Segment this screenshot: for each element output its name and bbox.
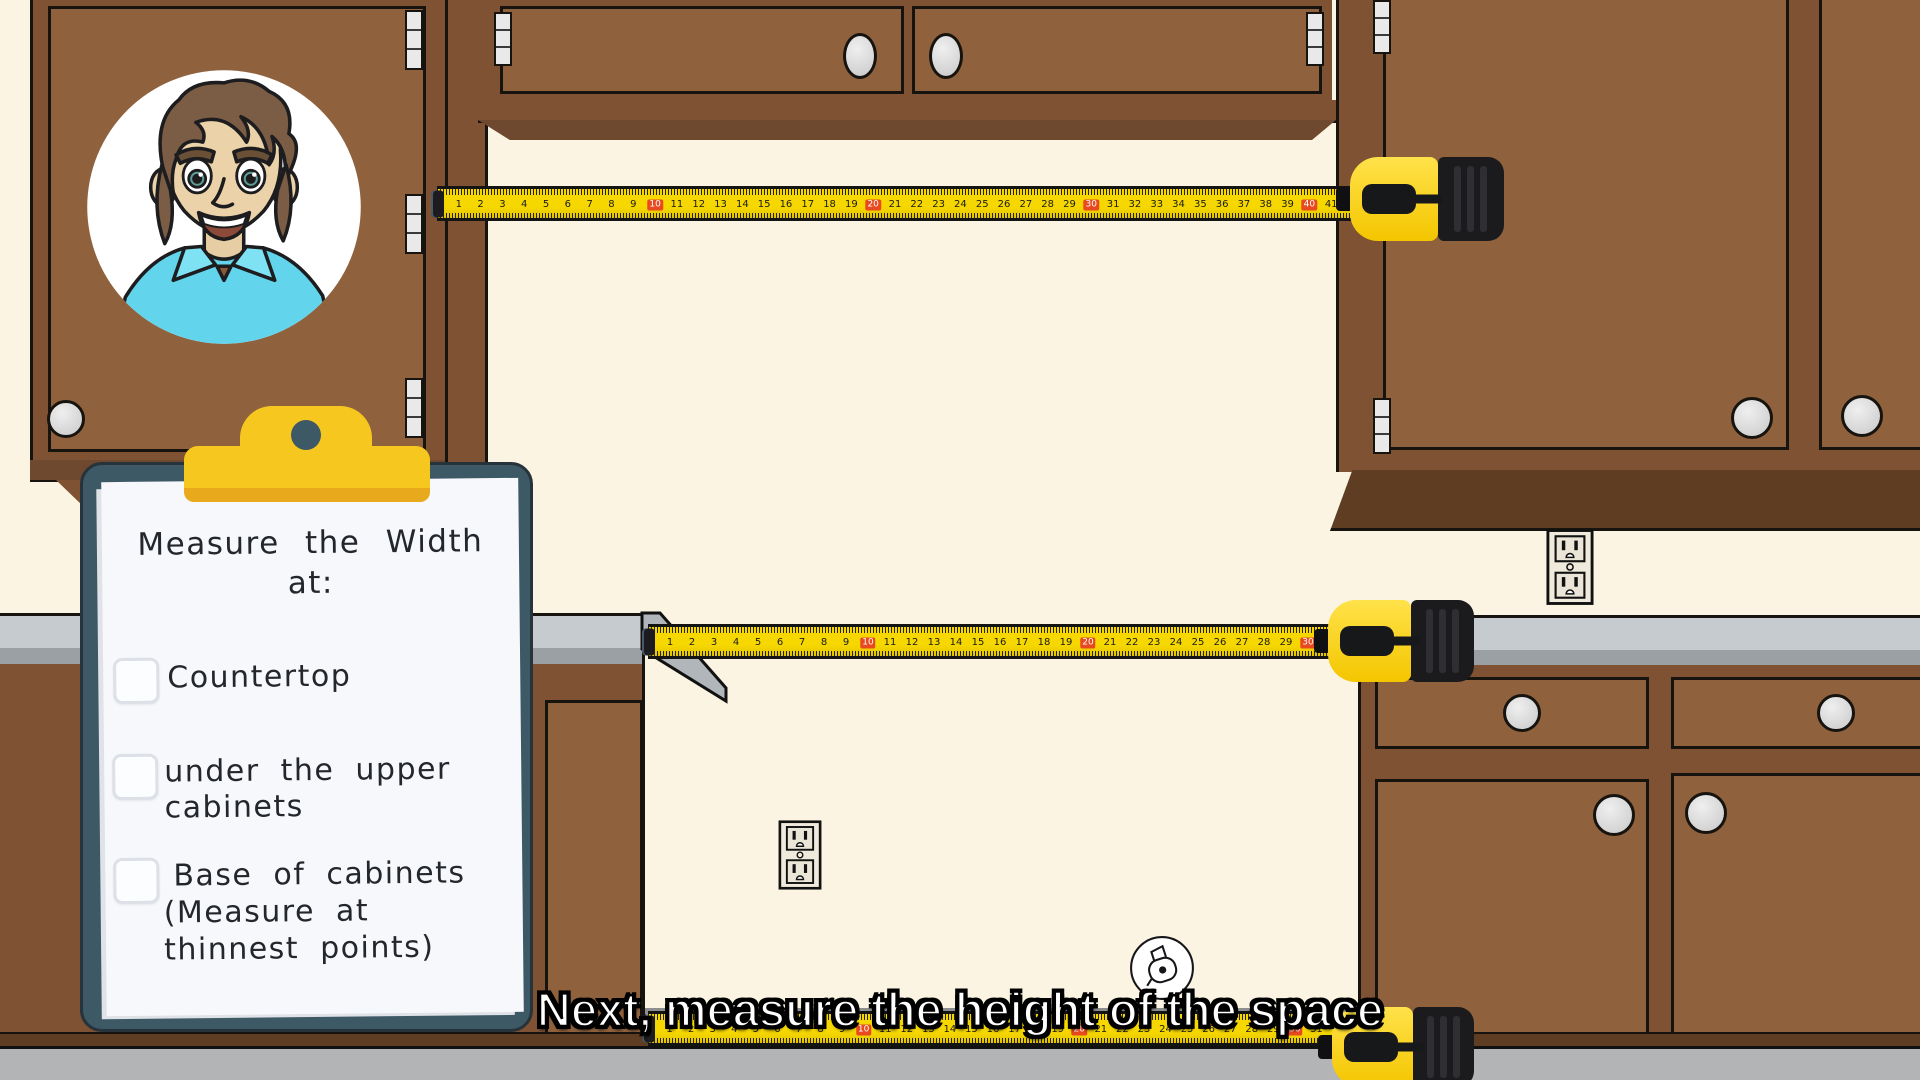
cabinet-knob [929, 33, 963, 79]
tape-scale-number: 22 [1126, 638, 1139, 648]
tape-scale-number: 10 [647, 199, 662, 210]
tape-hook [431, 190, 444, 217]
tape-scale-number: 14 [736, 200, 749, 210]
tape-scale-number: 13 [928, 638, 941, 648]
tape-scale-number: 15 [972, 638, 985, 648]
tape-scale-number: 25 [1192, 638, 1205, 648]
tape-scale-number: 18 [1038, 638, 1051, 648]
wall-outlet-icon [778, 820, 822, 890]
checklist-item-label: (Measure at [164, 896, 370, 928]
cabinet-knob [47, 400, 85, 438]
tape-grip [1438, 157, 1504, 241]
checkbox-under-upper-cabinets[interactable] [112, 754, 158, 800]
cabinet-door [1819, 0, 1920, 450]
tape-scale-number: 24 [954, 200, 967, 210]
tape-scale-number: 28 [1258, 638, 1271, 648]
tape-measure-body [1350, 157, 1504, 241]
tape-scale-number: 17 [801, 200, 814, 210]
tape-scale-number: 7 [586, 200, 592, 210]
clipboard-clip-shadow [184, 488, 430, 502]
tape-scale-number: 27 [1019, 200, 1032, 210]
tape-scale-number: 26 [998, 200, 1011, 210]
tape-scale-number: 21 [1104, 638, 1117, 648]
drawer-knob [1503, 694, 1541, 732]
tape-scale-number: 12 [906, 638, 919, 648]
tape-scale-number: 9 [843, 638, 849, 648]
checkbox-countertop[interactable] [113, 658, 159, 704]
tape-grip [1411, 600, 1474, 682]
tape-scale-number: 2 [477, 200, 483, 210]
checklist-item-label: cabinets [164, 792, 303, 823]
cabinet-knob [1841, 395, 1883, 437]
tape-scale-number: 29 [1063, 200, 1076, 210]
kitchen-scene: 1234567891011121314151617181920212223242… [0, 0, 1920, 1080]
tape-scale-number: 33 [1150, 200, 1163, 210]
tape-scale-number: 21 [889, 200, 902, 210]
cabinet-hinge-icon [1373, 398, 1391, 454]
tape-scale-number: 17 [1016, 638, 1029, 648]
checklist-title: Measure the Width [102, 526, 519, 561]
tape-scale-number: 27 [1236, 638, 1249, 648]
cabinet-knob [1685, 792, 1727, 834]
subtitle-caption: Next, measure the height of the space [420, 982, 1500, 1037]
tape-scale-number: 6 [777, 638, 783, 648]
tape-scale-number: 19 [1060, 638, 1073, 648]
drawer [1671, 677, 1920, 749]
tape-scale-number: 39 [1281, 200, 1294, 210]
cabinet-knob [843, 33, 877, 79]
tape-scale-number: 14 [950, 638, 963, 648]
tape-scale-number: 11 [884, 638, 897, 648]
tape-scale-number: 8 [821, 638, 827, 648]
tape-scale-number: 31 [1107, 200, 1120, 210]
tape-scale-number: 23 [932, 200, 945, 210]
tape-scale-number: 24 [1170, 638, 1183, 648]
tape-scale-number: 29 [1280, 638, 1293, 648]
tape-scale-number: 10 [860, 637, 875, 648]
tape-scale-number: 28 [1041, 200, 1054, 210]
clipboard-clip-hole [291, 420, 321, 450]
tape-scale-number: 3 [711, 638, 717, 648]
tape-scale-number: 37 [1238, 200, 1251, 210]
cabinet-hinge-icon [405, 378, 423, 438]
tape-scale-number: 25 [976, 200, 989, 210]
cabinet-soffit [478, 100, 1336, 123]
tape-scale-number: 20 [865, 199, 880, 210]
cabinet-hinge-icon [494, 12, 512, 66]
tape-scale-number: 30 [1084, 199, 1099, 210]
tape-case [1328, 600, 1411, 682]
tape-measure-blade-top: 1234567891011121314151617181920212223242… [437, 186, 1353, 221]
presenter-avatar [83, 66, 365, 348]
clipboard-paper: Measure the Width at: Countertop under t… [101, 478, 524, 1016]
tape-scale-number: 35 [1194, 200, 1207, 210]
tape-scale-number: 23 [1148, 638, 1161, 648]
tape-scale-number: 19 [845, 200, 858, 210]
cabinet-knob [1731, 397, 1773, 439]
tape-scale-number: 18 [823, 200, 836, 210]
cabinet-hinge-icon [405, 10, 423, 70]
tape-scale-number: 1 [456, 200, 462, 210]
tape-case [1350, 157, 1438, 241]
tape-scale-number: 3 [499, 200, 505, 210]
cabinet-soffit [478, 120, 1336, 140]
tape-scale-number: 6 [565, 200, 571, 210]
cabinet-hinge-icon [405, 194, 423, 254]
tape-measure-blade-middle: 1234567891011121314151617181920212223242… [648, 624, 1352, 659]
wall-outlet-icon [1546, 528, 1594, 606]
tape-scale-number: 7 [799, 638, 805, 648]
tape-scale-number: 34 [1172, 200, 1185, 210]
tape-scale-number: 9 [630, 200, 636, 210]
tape-scale-number: 32 [1129, 200, 1142, 210]
tape-measure-body [1328, 600, 1474, 682]
checkbox-base-of-cabinets[interactable] [113, 858, 159, 904]
tape-scale-number: 26 [1214, 638, 1227, 648]
upper-cabinet-center [482, 0, 1332, 103]
tape-scale-number: 5 [755, 638, 761, 648]
tape-hook [642, 628, 655, 655]
tape-scale-number: 5 [543, 200, 549, 210]
tape-scale-number: 13 [714, 200, 727, 210]
tape-scale-number: 4 [733, 638, 739, 648]
tape-scale-number: 12 [692, 200, 705, 210]
checklist-title-suffix: at: [102, 566, 519, 601]
tape-scale-number: 8 [608, 200, 614, 210]
tape-scale-number: 11 [671, 200, 684, 210]
tape-scale-number: 16 [780, 200, 793, 210]
clipboard-clip-tab [240, 406, 372, 466]
tape-scale-number: 22 [910, 200, 923, 210]
floor [0, 1046, 1920, 1080]
cabinet-hinge-icon [1373, 0, 1391, 54]
tape-scale-number: 40 [1302, 199, 1317, 210]
tape-scale-number: 16 [994, 638, 1007, 648]
tape-scale-number: 2 [689, 638, 695, 648]
tape-scale-number: 4 [521, 200, 527, 210]
cabinet-molding [1330, 470, 1920, 531]
tape-scale-number: 15 [758, 200, 771, 210]
tape-scale-number: 38 [1259, 200, 1272, 210]
cabinet-door [912, 6, 1322, 94]
checklist-item-label: thinnest points) [164, 933, 435, 966]
cabinet-hinge-icon [1306, 12, 1324, 66]
tape-scale-number: 20 [1080, 637, 1095, 648]
cabinet-knob [1593, 794, 1635, 836]
tape-scale-number: 1 [667, 638, 673, 648]
checklist-item-label: Countertop [167, 662, 351, 694]
base-cabinet-right [1358, 665, 1920, 1032]
presenter-illustration [83, 66, 365, 348]
checklist-item-label: Base of cabinets [173, 858, 465, 891]
tape-scale-number: 36 [1216, 200, 1229, 210]
drawer-knob [1817, 694, 1855, 732]
checklist-item-label: under the upper [164, 755, 451, 788]
